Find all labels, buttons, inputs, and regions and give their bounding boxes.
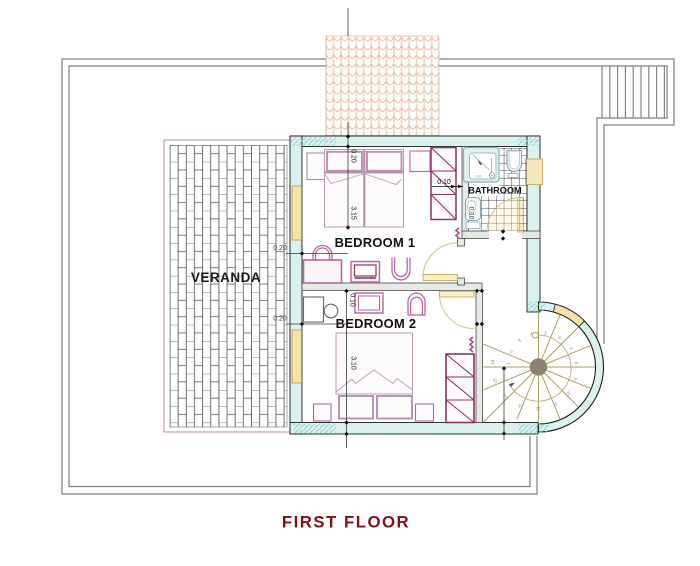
svg-text:0.20: 0.20 [273,316,287,323]
svg-text:1.60: 1.60 [474,174,483,179]
svg-text:16: 16 [490,359,496,365]
svg-text:12: 12 [536,407,542,412]
svg-text:3.15: 3.15 [350,206,357,220]
svg-text:FIRST FLOOR: FIRST FLOOR [282,513,410,532]
svg-text:0.10: 0.10 [349,293,356,307]
svg-text:0.20: 0.20 [350,149,357,163]
svg-text:VERANDA: VERANDA [191,270,261,285]
svg-text:0.20: 0.20 [273,245,287,252]
svg-text:3.10: 3.10 [350,356,357,370]
svg-text:BEDROOM 2: BEDROOM 2 [336,316,417,331]
svg-text:BEDROOM 1: BEDROOM 1 [335,235,416,250]
svg-text:BATHROOM: BATHROOM [468,186,522,196]
svg-text:0.10: 0.10 [437,179,451,186]
svg-text:0.10: 0.10 [468,207,475,220]
